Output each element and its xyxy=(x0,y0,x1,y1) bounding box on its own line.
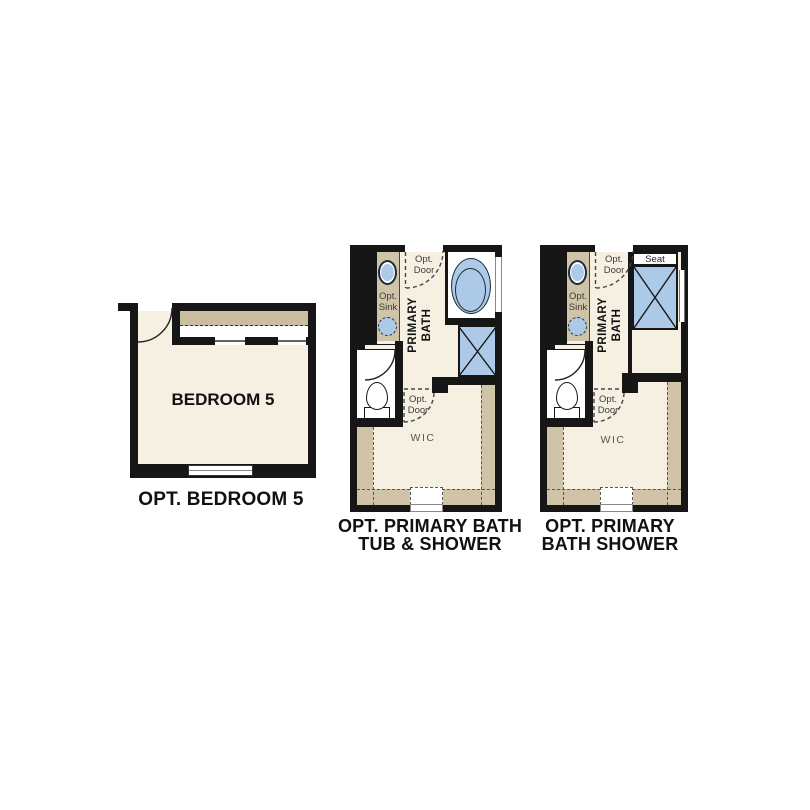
wall-wic-top xyxy=(448,377,495,385)
wall-left xyxy=(130,303,138,478)
room-label-primary-bath: PRIMARY BATH xyxy=(597,280,625,370)
opt-door-line2: Door xyxy=(404,265,444,276)
plan-caption-shower: OPT. PRIMARY BATH SHOWER xyxy=(510,517,710,553)
window xyxy=(600,504,633,512)
opt-door-line1: Opt. xyxy=(398,394,438,405)
shower-seat: Seat xyxy=(632,252,678,266)
wall-below-toilet xyxy=(540,418,593,427)
optional-sink-icon xyxy=(378,317,397,336)
caption-line1: OPT. PRIMARY BATH xyxy=(330,517,530,535)
opt-door-wic-label: Opt. Door xyxy=(398,394,438,416)
caption-line1: OPT. PRIMARY xyxy=(510,517,710,535)
opt-door-top-label: Opt. Door xyxy=(404,254,444,276)
wall-right xyxy=(308,303,316,478)
toilet-icon xyxy=(366,382,388,410)
wall-below-tub xyxy=(445,318,502,325)
opt-door-line1: Opt. xyxy=(588,394,628,405)
wic-shelf-right xyxy=(481,385,495,505)
wic-label: WIC xyxy=(593,434,633,446)
opt-sink-label: Opt. Sink xyxy=(368,291,408,313)
opt-sink-line2: Sink xyxy=(558,302,598,313)
floorplan-options-canvas: BEDROOM 5 OPT. BEDROOM 5 Opt. Sink Opt xyxy=(0,0,810,810)
shelf-line xyxy=(373,427,374,505)
wall-top xyxy=(633,245,688,252)
wic-label: WIC xyxy=(403,432,443,444)
room-line1: PRIMARY xyxy=(597,280,611,370)
opt-sink-line1: Opt. xyxy=(558,291,598,302)
shelf-line xyxy=(481,385,482,505)
room-line2: BATH xyxy=(611,280,625,370)
closet-shelf xyxy=(180,311,308,326)
wall-entry xyxy=(540,341,555,350)
shelf-line xyxy=(667,382,668,505)
wic-shelf-right xyxy=(667,382,681,505)
opt-door-line2: Door xyxy=(588,405,628,416)
optional-sink-icon xyxy=(568,317,587,336)
tub-basin-icon xyxy=(455,268,486,312)
wall-bottom xyxy=(540,505,600,512)
wall-top xyxy=(172,303,316,311)
closet-door-opening xyxy=(215,337,245,345)
wall-tub-alcove xyxy=(445,252,448,318)
shower-glass xyxy=(679,270,685,322)
closet-door-opening xyxy=(278,337,306,345)
wall-entry xyxy=(350,341,365,350)
plan-caption-bedroom5: OPT. BEDROOM 5 xyxy=(121,490,321,509)
shelf-line xyxy=(563,427,564,505)
window xyxy=(188,465,253,476)
wall-bottom xyxy=(443,505,502,512)
wall-below-toilet xyxy=(350,418,403,427)
caption-line2: BATH SHOWER xyxy=(510,535,710,553)
opt-door-wic-label: Opt. Door xyxy=(588,394,628,416)
toilet-icon xyxy=(556,382,578,410)
wall-step xyxy=(432,377,448,393)
wic-entry-notch xyxy=(410,487,443,505)
wall-bottom xyxy=(633,505,688,512)
wall-bottom xyxy=(350,505,410,512)
caption-line2: TUB & SHOWER xyxy=(330,535,530,553)
wall-step xyxy=(622,373,638,393)
shower-icon xyxy=(458,325,497,377)
opt-door-line1: Opt. xyxy=(404,254,444,265)
opt-door-line2: Door xyxy=(398,405,438,416)
window xyxy=(410,504,443,512)
room-label-primary-bath: PRIMARY BATH xyxy=(407,280,435,370)
room-line2: BATH xyxy=(421,280,435,370)
wall-wic-top xyxy=(638,373,681,382)
opt-sink-label: Opt. Sink xyxy=(558,291,598,313)
plan-caption-tub-shower: OPT. PRIMARY BATH TUB & SHOWER xyxy=(330,517,530,553)
window xyxy=(495,257,502,312)
opt-sink-line1: Opt. xyxy=(368,291,408,302)
closet-floor xyxy=(180,326,308,337)
opt-sink-line2: Sink xyxy=(368,302,408,313)
room-line1: PRIMARY xyxy=(407,280,421,370)
sink-icon xyxy=(378,260,397,285)
room-label-bedroom5: BEDROOM 5 xyxy=(148,390,298,410)
sink-icon xyxy=(568,260,587,285)
wic-entry-notch xyxy=(600,487,633,505)
wall-top xyxy=(443,245,502,252)
shower-icon xyxy=(632,265,678,330)
